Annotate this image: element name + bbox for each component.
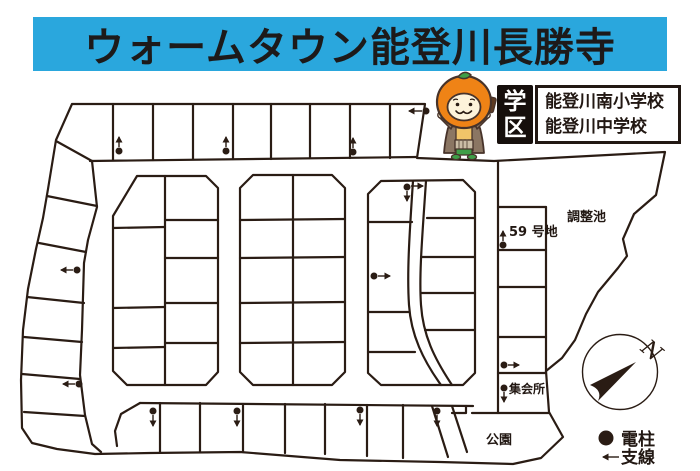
utility-pole xyxy=(61,267,81,274)
mascot-foot xyxy=(468,154,477,159)
block-a-lots xyxy=(113,176,218,385)
elementary-school-name: 能登川南小学校 xyxy=(545,90,678,115)
school-names-box: 能登川南小学校 能登川中学校 xyxy=(535,85,681,144)
mascot-character xyxy=(437,72,497,159)
utility-pole xyxy=(357,407,364,426)
title-banner: ウォームタウン能登川長勝寺 xyxy=(33,17,667,71)
block-c-lots xyxy=(368,180,475,385)
mascot-foot xyxy=(452,154,461,159)
utility-pole xyxy=(500,231,507,249)
block-b-lots xyxy=(240,175,345,385)
utility-pole xyxy=(150,408,157,427)
utility-pole xyxy=(501,385,508,403)
utility-poles xyxy=(61,108,519,427)
mascot-face xyxy=(448,94,481,121)
utility-pole xyxy=(63,381,83,388)
map-legend: 電柱 支線 xyxy=(599,429,656,468)
utility-pole xyxy=(409,108,430,115)
badge-char-2: 区 xyxy=(504,115,527,141)
utility-pole xyxy=(116,137,123,155)
park-label: 公園 xyxy=(486,432,512,448)
utility-pole xyxy=(501,362,520,369)
page-title: ウォームタウン能登川長勝寺 xyxy=(84,15,616,73)
left-lot-strip xyxy=(22,141,101,452)
compass-rose: N xyxy=(583,335,668,410)
bottom-lot-strip xyxy=(115,403,473,458)
junior-high-school-name: 能登川中学校 xyxy=(545,115,678,140)
legend-wire-label: 支線 xyxy=(621,447,655,468)
pond-label: 調整池 xyxy=(567,209,606,225)
utility-pole xyxy=(371,273,391,280)
badge-char-1: 学 xyxy=(504,89,527,115)
school-district-badge: 学 区 xyxy=(497,85,533,144)
compass-needle-icon xyxy=(590,362,636,401)
legend-pole-label: 電柱 xyxy=(621,429,655,450)
mascot-leaf-icon xyxy=(458,72,471,78)
pole-dot-icon xyxy=(599,431,614,446)
lot59-label: 59 号地 xyxy=(509,224,558,240)
site-map-page: 調整池 59 号地 集会所 公園 N 電柱 支線 xyxy=(0,0,700,471)
utility-pole xyxy=(223,137,230,155)
lot59-column xyxy=(472,161,549,413)
meeting-hall-label: 集会所 xyxy=(508,381,545,396)
utility-pole xyxy=(234,408,241,427)
top-lot-strip xyxy=(90,104,417,161)
